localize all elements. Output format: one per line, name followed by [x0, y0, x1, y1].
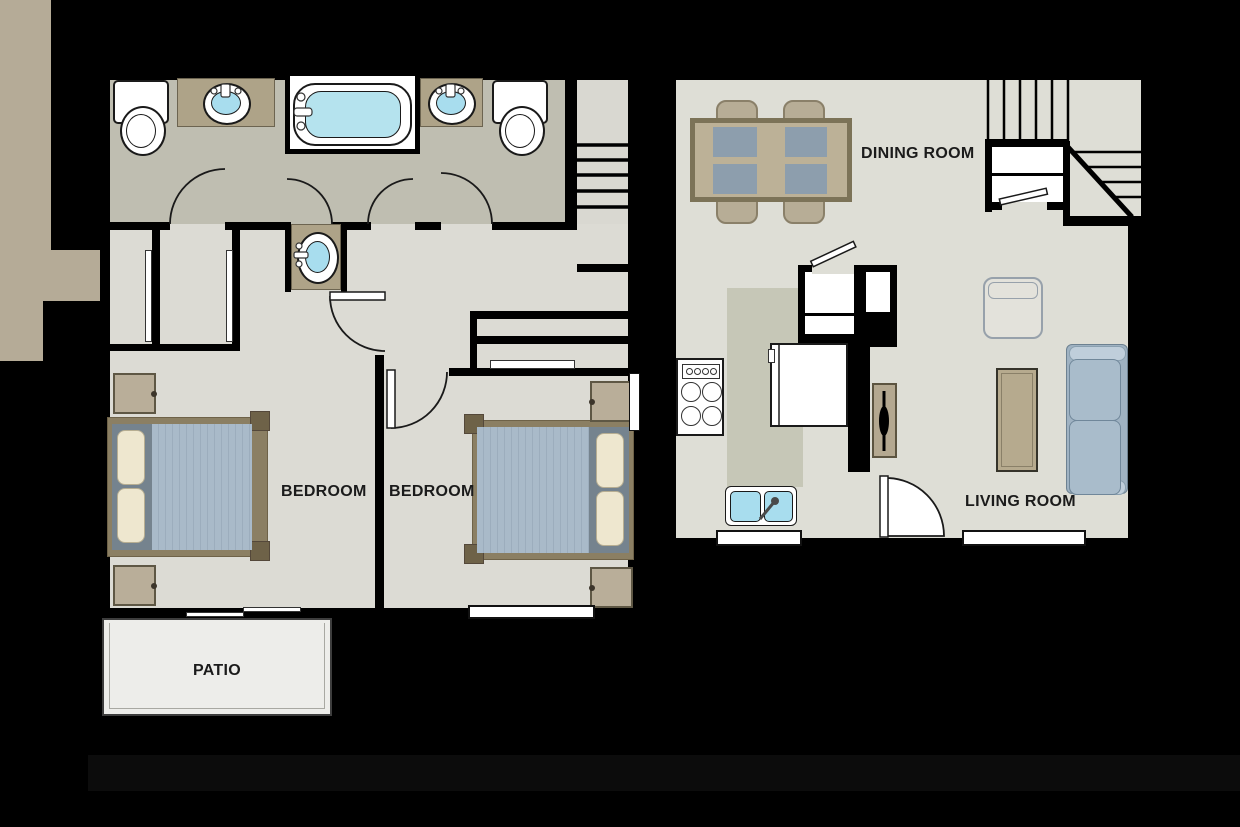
pantry-door-opening: [812, 265, 854, 274]
dining-room-label: DINING ROOM: [861, 145, 975, 163]
pillow: [117, 430, 145, 485]
kitchen-counter: [0, 301, 43, 361]
wall: [664, 70, 676, 548]
placemat: [713, 127, 757, 157]
wall: [848, 347, 870, 472]
stair-closet-shelf: [992, 173, 1063, 176]
toilet: [113, 80, 169, 154]
toilet: [492, 80, 548, 154]
pantry-interior: [805, 272, 854, 334]
patio: PATIO: [102, 618, 332, 716]
sofa: [1066, 344, 1128, 494]
stair-closet-wall: [985, 202, 1002, 210]
floor-plan-canvas: PATIO BEDROOM BEDROOM: [0, 0, 1240, 827]
wall: [477, 336, 628, 344]
pillow: [596, 433, 624, 488]
window: [716, 530, 802, 546]
window: [629, 373, 640, 431]
patio-slider-panel: [186, 612, 244, 617]
living-room-label: LIVING ROOM: [965, 493, 1076, 511]
watermark-strip: [88, 755, 1240, 791]
bedroom-divider-wall: [375, 355, 384, 610]
wall: [664, 70, 1141, 80]
stair-wall: [1067, 216, 1141, 226]
wall: [577, 264, 628, 272]
kitchen-counter: [0, 0, 51, 250]
wall: [565, 70, 577, 230]
closet-door-panel: [490, 360, 575, 369]
closet-wall: [110, 344, 240, 351]
patio-slider-panel: [243, 607, 301, 612]
placemat: [713, 164, 757, 194]
bed-post: [250, 541, 270, 561]
placemat: [785, 164, 827, 194]
patio-label: PATIO: [104, 662, 330, 680]
window: [468, 605, 595, 619]
armchair: [983, 277, 1043, 339]
nightstand: [113, 565, 156, 606]
refrigerator: [770, 343, 848, 427]
wall: [470, 311, 628, 319]
nightstand: [113, 373, 156, 414]
stair-wall: [1063, 141, 1070, 226]
coffee-table: [996, 368, 1038, 472]
bed-mattress: [477, 427, 589, 553]
nightstand: [590, 567, 633, 608]
pillow: [596, 491, 624, 546]
closet-wall: [232, 224, 240, 350]
placemat: [785, 127, 827, 157]
vanity-sink: [428, 83, 474, 123]
wall: [341, 222, 347, 292]
stair-closet-wall: [1047, 202, 1067, 210]
vanity-sink: [203, 83, 249, 123]
bedroom1-label: BEDROOM: [281, 483, 367, 501]
pillow: [117, 488, 145, 543]
closet-wall: [152, 224, 160, 350]
bed-mattress: [152, 424, 252, 550]
stair-closet-wall: [985, 139, 1067, 147]
pantry-shelf: [805, 313, 854, 316]
wall: [470, 311, 477, 376]
bathtub-water: [305, 91, 401, 138]
closet-door-panel: [145, 250, 152, 342]
wall: [1128, 222, 1141, 548]
wall: [110, 222, 170, 230]
wall: [415, 222, 441, 230]
closet-door-panel: [226, 250, 233, 342]
kitchen-sink: [725, 486, 797, 526]
bedroom2-label: BEDROOM: [389, 483, 475, 501]
window: [962, 530, 1086, 546]
console-table: [872, 383, 897, 458]
bed-post: [250, 411, 270, 431]
stove: [676, 358, 724, 436]
nightstand: [590, 381, 633, 422]
pantry-interior: [866, 272, 890, 312]
hall-sink: [297, 232, 337, 282]
